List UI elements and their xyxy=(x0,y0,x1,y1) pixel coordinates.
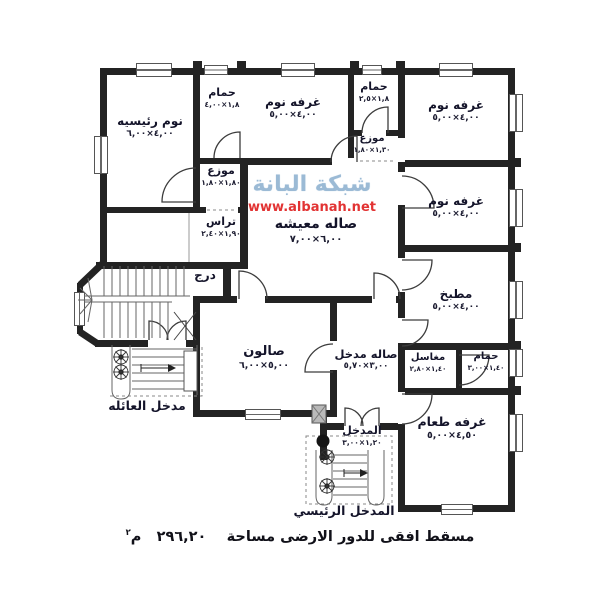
room-label-entrance-lobby: المدخل ١,٢٠×٣,٠٠ xyxy=(342,424,381,447)
window xyxy=(509,94,523,132)
window xyxy=(509,414,523,452)
caption-area-value: ٢٩٦,٢٠ xyxy=(157,529,207,545)
family-entrance-label: مدخل العائله xyxy=(108,398,186,413)
wall-stub xyxy=(396,61,405,68)
wall xyxy=(398,348,405,392)
room-dimensions: ١,٤٠×٢,٨٠ xyxy=(410,365,447,374)
vent-window xyxy=(362,65,382,75)
room-name: غرفه نوم xyxy=(265,95,321,110)
window xyxy=(509,189,523,227)
window xyxy=(94,136,108,174)
wall xyxy=(265,296,372,303)
room-dimensions: ١,٨٠×١,٨٠ xyxy=(201,178,240,187)
wall xyxy=(398,424,405,512)
window xyxy=(136,63,172,77)
room-label-dining-room: غرفه طعام ٤,٥٠×٥,٠٠ xyxy=(417,414,486,442)
room-name: موزع xyxy=(354,133,391,146)
vent-window xyxy=(204,65,228,75)
wall xyxy=(405,388,508,395)
wall xyxy=(100,207,206,213)
room-name: صالون xyxy=(239,344,289,360)
room-dimensions: ٤,٠٠×٥,٠٠ xyxy=(428,209,484,220)
room-name: حمام xyxy=(205,86,240,100)
wall xyxy=(380,423,398,430)
wall-stub xyxy=(193,61,202,68)
room-name: حمام xyxy=(468,351,505,364)
wall xyxy=(398,343,508,350)
wall xyxy=(398,205,405,258)
wall xyxy=(240,158,248,269)
room-name: مطبخ xyxy=(432,287,479,302)
room-name: المدخل xyxy=(342,424,381,438)
room-label-entry-hall: صاله مدخل ٣,٠٠×٥,٧٠ xyxy=(334,347,397,372)
wall xyxy=(320,417,327,460)
wall xyxy=(398,68,405,138)
room-label-bedroom-right-2: غرفه نوم ٤,٠٠×٥,٠٠ xyxy=(428,194,484,220)
caption-unit: م xyxy=(131,529,142,545)
room-name: تراس xyxy=(201,215,240,229)
wall-stub xyxy=(515,243,521,252)
wall xyxy=(193,296,200,417)
wall xyxy=(330,303,337,341)
room-dimensions: ٣,٠٠×٥,٧٠ xyxy=(334,361,397,372)
room-dimensions: ١,٨×٢,٥ xyxy=(359,94,389,103)
wall xyxy=(405,245,508,252)
room-label-master-bedroom: نوم رئيسيه ٤,٠٠×٦,٠٠ xyxy=(117,114,183,140)
room-dimensions: ٤,٠٠×٥,٠٠ xyxy=(265,110,321,121)
room-label-distributor-left: موزع ١,٨٠×١,٨٠ xyxy=(201,164,240,187)
bay-window xyxy=(74,292,85,326)
window xyxy=(439,63,473,77)
wall xyxy=(398,292,405,318)
wall xyxy=(193,75,200,213)
window xyxy=(509,281,523,319)
room-label-washbasins: مغاسل ١,٤٠×٢,٨٠ xyxy=(410,352,447,373)
room-name: موزع xyxy=(201,164,240,178)
wall-stub xyxy=(350,61,359,68)
room-dimensions: ١,٢٠×٣,٠٠ xyxy=(342,438,381,447)
wall xyxy=(193,296,237,303)
window xyxy=(509,349,523,377)
room-label-salon: صالون ٥,٠٠×٦,٠٠ xyxy=(239,344,289,372)
room-dimensions: ٤,٠٠×٦,٠٠ xyxy=(117,129,183,140)
room-label-kitchen: مطبخ ٤,٠٠×٥,٠٠ xyxy=(432,287,479,313)
wall-stub xyxy=(237,61,246,68)
room-name: غرفه طعام xyxy=(417,414,486,430)
window xyxy=(245,409,281,420)
room-label-living-hall: صاله معيشه ٦,٠٠×٧,٠٠ xyxy=(275,216,357,246)
room-dimensions: ١,٣٠×١,٨٠ xyxy=(354,146,391,155)
watermark-url: www.albanah.net xyxy=(248,200,376,215)
room-dimensions: ٥,٠٠×٦,٠٠ xyxy=(239,360,289,372)
room-dimensions: ٤,٠٠×٥,٠٠ xyxy=(428,113,484,124)
room-dimensions: ٤,٠٠×٥,٠٠ xyxy=(432,302,479,313)
tree-symbols xyxy=(113,349,335,494)
room-name: حمام xyxy=(359,80,389,94)
window xyxy=(281,63,315,77)
room-name: نوم رئيسيه xyxy=(117,114,183,129)
room-dimensions: ٦,٠٠×٧,٠٠ xyxy=(275,234,357,247)
wall xyxy=(405,160,508,167)
room-dimensions: ١,٨×٤,٠٠ xyxy=(205,100,240,109)
room-label-bath-top-left: حمام ١,٨×٤,٠٠ xyxy=(205,86,240,109)
room-label-bath-top-right: حمام ١,٨×٢,٥ xyxy=(359,80,389,103)
room-label-stairs: درج xyxy=(194,268,216,283)
room-dimensions: ١,٤٠×٣,٠٠ xyxy=(468,364,505,373)
wall-stub xyxy=(515,158,521,167)
room-dimensions: ٤,٥٠×٥,٠٠ xyxy=(417,430,486,442)
room-name: مغاسل xyxy=(410,352,447,365)
staircase xyxy=(78,266,196,340)
family-entrance-steps xyxy=(112,345,197,399)
main-entrance-label: المدخل الرئيسي xyxy=(293,503,394,518)
watermark-brand: شبكة البانة xyxy=(252,172,371,197)
wall-stub xyxy=(515,386,521,395)
room-name: درج xyxy=(194,268,216,283)
room-label-bedroom-right-1: غرفه نوم ٤,٠٠×٥,٠٠ xyxy=(428,98,484,124)
window xyxy=(441,504,473,515)
room-label-bedroom-middle: غرفه نوم ٤,٠٠×٥,٠٠ xyxy=(265,95,321,121)
plan-caption: مسقط افقى للدور الارضى مساحة ٢٩٦,٢٠ م٢ xyxy=(0,528,600,545)
room-label-distributor-right: موزع ١,٣٠×١,٨٠ xyxy=(354,133,391,154)
room-name: غرفه نوم xyxy=(428,98,484,113)
wall xyxy=(398,162,405,172)
room-name: غرفه نوم xyxy=(428,194,484,209)
wall xyxy=(248,158,332,165)
wall xyxy=(95,340,148,347)
room-dimensions: ١,٩٠×٢,٤٠ xyxy=(201,229,240,238)
room-label-bath-bottom: حمام ١,٤٠×٣,٠٠ xyxy=(468,351,505,372)
caption-text: مسقط افقى للدور الارضى مساحة xyxy=(227,529,475,545)
floor-plan: نوم رئيسيه ٤,٠٠×٦,٠٠ حمام ١,٨×٤,٠٠ غرفه … xyxy=(0,0,600,600)
room-name: صاله معيشه xyxy=(275,216,357,234)
room-label-terrace: تراس ١,٩٠×٢,٤٠ xyxy=(201,215,240,238)
room-name: صاله مدخل xyxy=(334,347,397,361)
